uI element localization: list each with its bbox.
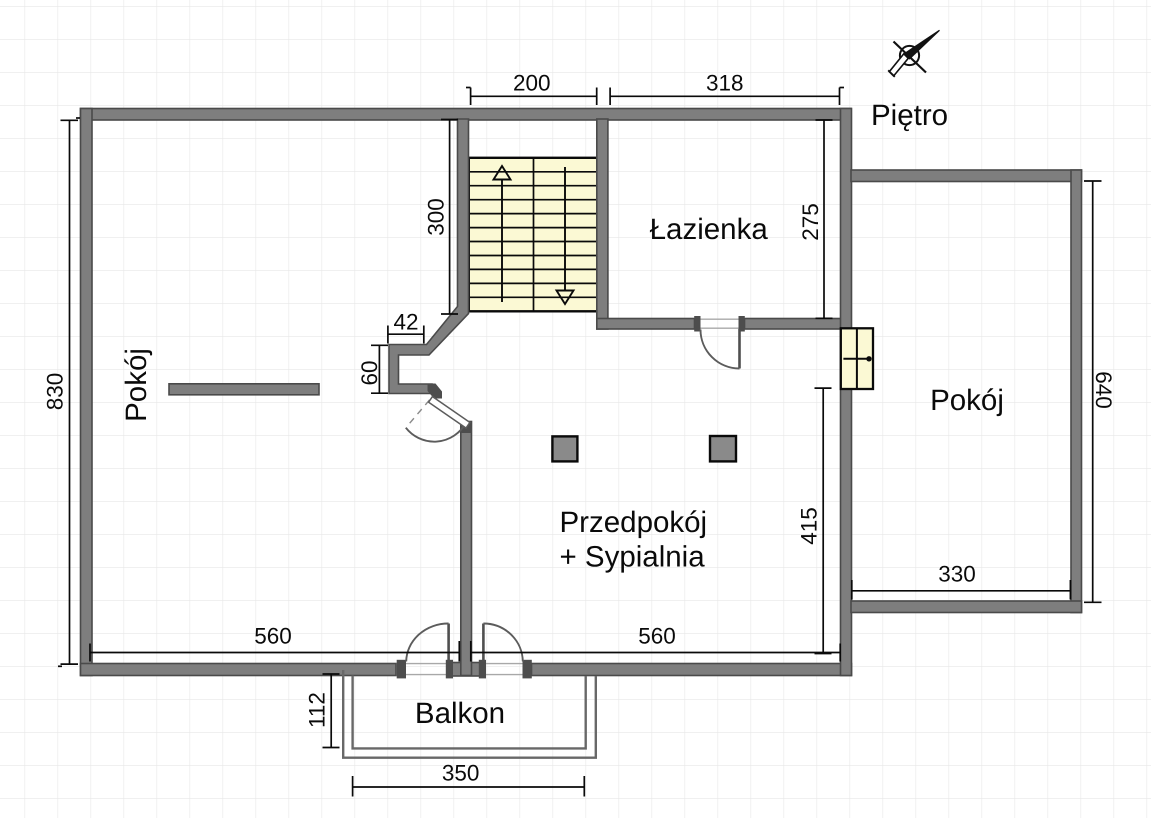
svg-text:Łazienka: Łazienka bbox=[650, 213, 769, 246]
svg-text:330: 330 bbox=[938, 562, 976, 587]
svg-text:640: 640 bbox=[1091, 371, 1116, 409]
svg-text:300: 300 bbox=[424, 198, 449, 236]
svg-text:Pokój: Pokój bbox=[120, 348, 153, 422]
svg-text:830: 830 bbox=[43, 373, 68, 411]
svg-text:60: 60 bbox=[357, 360, 382, 385]
svg-text:318: 318 bbox=[706, 71, 744, 96]
svg-text:200: 200 bbox=[513, 71, 551, 96]
svg-text:Balkon: Balkon bbox=[415, 697, 505, 730]
svg-text:Pokój: Pokój bbox=[930, 384, 1004, 417]
svg-text:560: 560 bbox=[638, 624, 676, 649]
svg-text:42: 42 bbox=[393, 310, 418, 335]
svg-text:350: 350 bbox=[442, 761, 480, 786]
svg-text:112: 112 bbox=[305, 692, 330, 728]
svg-text:560: 560 bbox=[254, 624, 292, 649]
svg-text:275: 275 bbox=[798, 203, 823, 241]
svg-text:+ Sypialnia: + Sypialnia bbox=[560, 541, 706, 574]
svg-text:Przedpokój: Przedpokój bbox=[560, 506, 708, 539]
svg-text:Piętro: Piętro bbox=[871, 99, 948, 132]
svg-text:415: 415 bbox=[797, 507, 822, 545]
